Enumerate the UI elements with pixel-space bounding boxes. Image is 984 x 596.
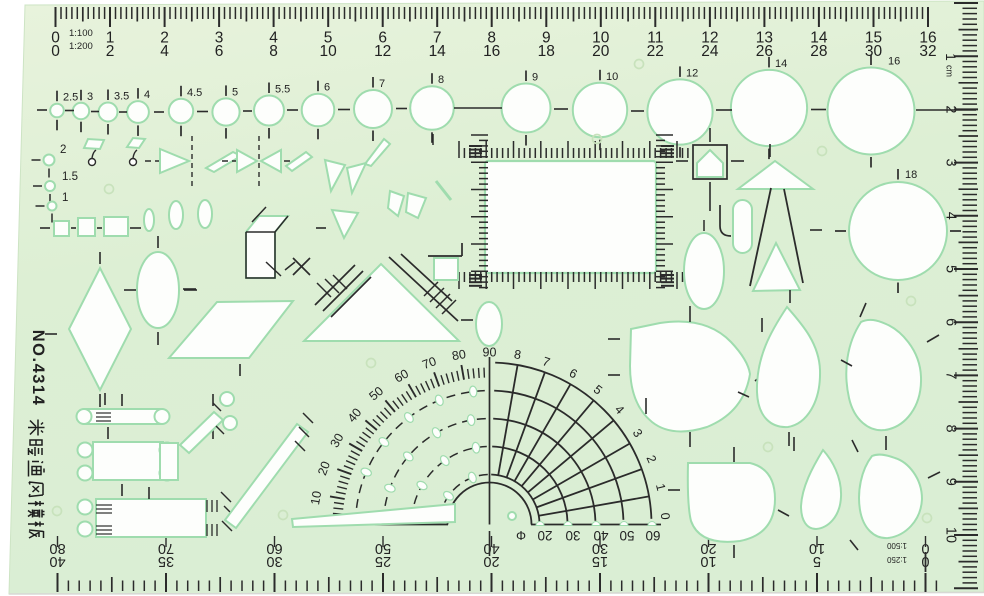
svg-text:80: 80: [451, 347, 467, 363]
svg-text:10: 10: [943, 527, 959, 543]
svg-text:50: 50: [619, 528, 634, 543]
svg-text:4: 4: [160, 43, 169, 60]
svg-text:35: 35: [158, 553, 174, 569]
svg-text:5: 5: [232, 86, 238, 98]
svg-text:10: 10: [700, 553, 716, 569]
svg-text:1: 1: [62, 192, 68, 204]
svg-text:Φ: Φ: [516, 528, 526, 542]
svg-text:90: 90: [483, 346, 497, 360]
svg-text:1:250: 1:250: [886, 555, 907, 564]
svg-text:6: 6: [215, 43, 224, 60]
svg-text:20: 20: [537, 528, 552, 543]
svg-text:3.5: 3.5: [114, 91, 129, 103]
svg-text:cm: cm: [945, 65, 955, 77]
svg-text:2: 2: [60, 144, 66, 156]
svg-text:12: 12: [374, 43, 391, 60]
svg-text:20: 20: [592, 43, 610, 60]
svg-text:2.5: 2.5: [63, 92, 78, 104]
svg-text:5: 5: [943, 265, 959, 273]
svg-text:12: 12: [686, 67, 698, 79]
svg-text:10: 10: [606, 71, 618, 83]
svg-text:9: 9: [532, 72, 538, 84]
svg-text:40: 40: [49, 553, 65, 569]
svg-text:6: 6: [943, 318, 959, 326]
svg-text:7: 7: [379, 78, 385, 90]
svg-text:14: 14: [775, 58, 787, 70]
svg-text:8: 8: [943, 425, 959, 433]
svg-text:10: 10: [308, 490, 324, 506]
svg-text:30: 30: [266, 553, 282, 569]
svg-text:1.5: 1.5: [62, 171, 78, 183]
svg-text:0: 0: [658, 512, 672, 520]
svg-text:30: 30: [865, 43, 883, 60]
svg-text:32: 32: [919, 43, 936, 60]
svg-text:10: 10: [319, 43, 337, 60]
svg-text:1:200: 1:200: [69, 41, 93, 52]
svg-text:NO.4314: NO.4314: [29, 330, 47, 407]
svg-text:5: 5: [813, 553, 821, 569]
svg-text:15: 15: [592, 553, 608, 569]
svg-text:1: 1: [943, 53, 958, 61]
svg-text:22: 22: [647, 43, 664, 60]
svg-text:3: 3: [87, 91, 93, 103]
svg-text:20: 20: [483, 553, 499, 569]
svg-text:60: 60: [645, 528, 660, 543]
svg-text:14: 14: [429, 43, 447, 60]
svg-text:24: 24: [701, 43, 719, 60]
svg-text:8: 8: [269, 43, 278, 60]
svg-text:18: 18: [905, 169, 917, 181]
svg-text:1:100: 1:100: [69, 28, 93, 39]
svg-text:30: 30: [565, 528, 580, 543]
svg-text:1:500: 1:500: [886, 541, 907, 550]
svg-text:16: 16: [483, 43, 500, 60]
svg-text:8: 8: [438, 74, 444, 86]
svg-text:5.5: 5.5: [275, 84, 290, 96]
svg-text:4.5: 4.5: [187, 87, 202, 99]
svg-text:18: 18: [538, 43, 555, 60]
svg-text:6: 6: [324, 82, 330, 94]
svg-text:7: 7: [943, 371, 959, 379]
svg-text:25: 25: [375, 553, 391, 569]
svg-text:4: 4: [144, 89, 150, 101]
svg-text:16: 16: [888, 56, 900, 68]
svg-text:9: 9: [943, 478, 959, 486]
svg-text:28: 28: [810, 43, 827, 60]
svg-text:0: 0: [51, 43, 60, 60]
svg-text:40: 40: [593, 528, 608, 543]
svg-text:26: 26: [756, 43, 773, 60]
svg-text:3: 3: [943, 159, 959, 167]
svg-text:2: 2: [106, 43, 115, 60]
